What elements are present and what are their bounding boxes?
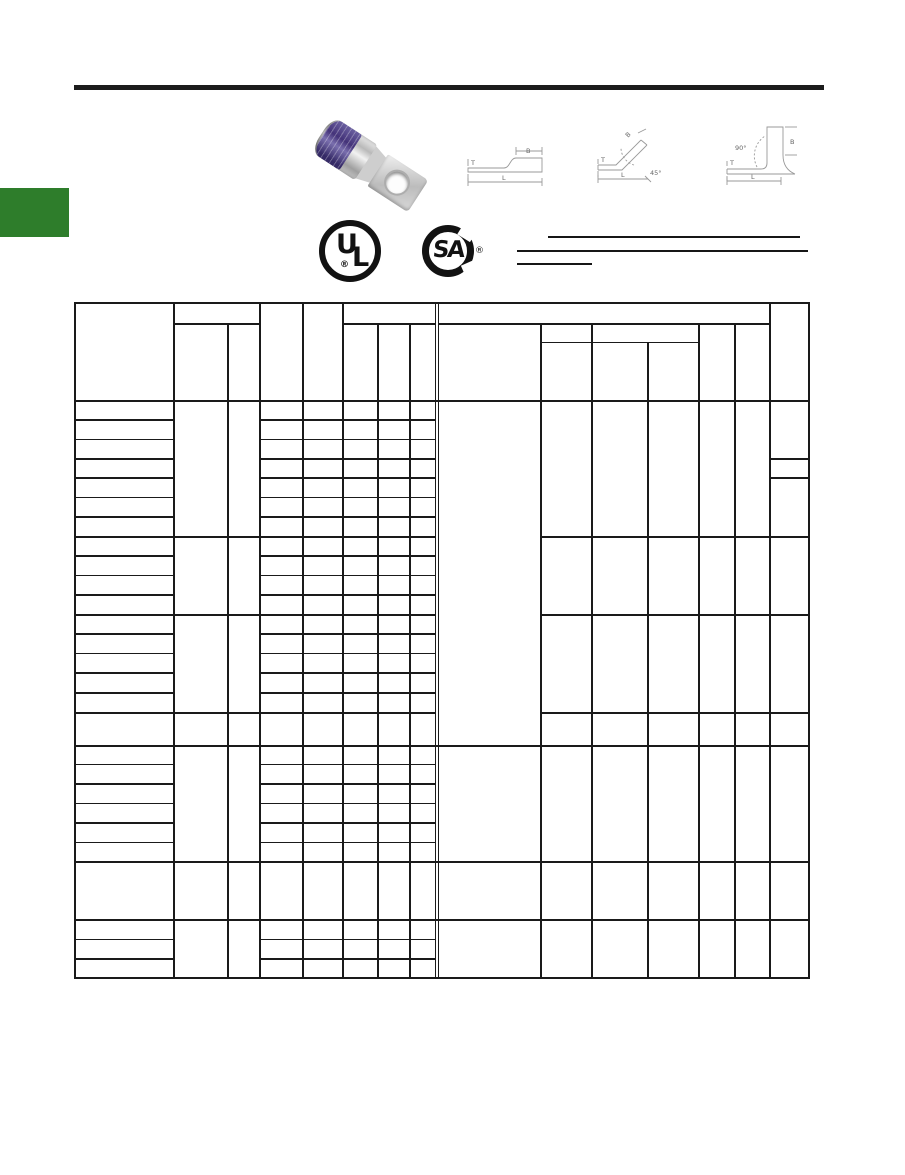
table-grid-line: [74, 302, 810, 304]
table-grid-line: [540, 536, 810, 538]
table-grid-line: [74, 977, 810, 979]
table-grid-line: [74, 555, 173, 557]
table-grid-line: [74, 764, 173, 766]
table-grid-line: [435, 302, 437, 977]
table-grid-line: [342, 323, 435, 325]
table-grid-line: [259, 458, 435, 460]
table-grid-line: [74, 939, 173, 941]
table-grid-line: [259, 497, 435, 499]
table-grid-line: [302, 302, 304, 977]
table-grid-line: [259, 555, 435, 557]
table-grid-line: [540, 323, 542, 977]
table-grid-line: [259, 842, 435, 844]
table-grid-line: [74, 575, 173, 577]
table-grid-line: [259, 594, 435, 596]
table-grid-line: [74, 919, 810, 921]
table-grid-line: [74, 958, 173, 960]
table-grid-line: [540, 342, 698, 344]
table-grid-line: [769, 302, 771, 977]
table-grid-line: [377, 323, 379, 977]
table-grid-line: [74, 302, 76, 979]
table-grid-line: [438, 323, 770, 325]
table-grid-line: [74, 614, 435, 616]
table-grid-line: [259, 958, 435, 960]
catalog-table: [74, 302, 810, 979]
table-grid-line: [259, 419, 435, 421]
table-grid-line: [259, 653, 435, 655]
table-grid-line: [74, 419, 173, 421]
table-grid-line: [74, 861, 810, 863]
table-grid-line: [259, 672, 435, 674]
table-grid-line: [74, 400, 810, 402]
green-side-tab: [0, 188, 69, 237]
dim-label-t: T: [600, 156, 605, 164]
table-grid-line: [74, 842, 173, 844]
table-grid-line: [74, 458, 173, 460]
table-grid-line: [438, 302, 440, 977]
table-grid-line: [74, 633, 173, 635]
ul-logo: U L ®: [319, 220, 382, 283]
table-grid-line: [769, 477, 810, 479]
table-grid-line: [259, 575, 435, 577]
table-grid-line: [74, 497, 173, 499]
table-grid-line: [647, 342, 649, 978]
table-grid-line: [74, 439, 173, 441]
table-grid-line: [74, 745, 810, 747]
ul-registered-mark: ®: [340, 260, 349, 270]
lug-assembly: [310, 116, 429, 214]
table-grid-line: [409, 323, 411, 977]
dim-label-b: B: [526, 147, 530, 155]
csa-letters-sa: SA: [426, 237, 471, 263]
dim-label-t: T: [470, 159, 475, 167]
table-grid-line: [259, 939, 435, 941]
dim-label-b: B: [790, 138, 794, 146]
table-grid-line: [74, 672, 173, 674]
dim-label-l: L: [621, 171, 625, 179]
ul-letter-l: L: [352, 242, 369, 273]
diagram-straight-lug: B T L: [464, 144, 552, 190]
table-grid-line: [259, 302, 261, 977]
dim-label-l: L: [502, 174, 506, 182]
table-grid-line: [769, 458, 810, 460]
table-grid-line: [808, 302, 810, 979]
table-grid-line: [259, 633, 435, 635]
dim-label-l: L: [751, 173, 755, 181]
table-grid-line: [259, 477, 435, 479]
blank-reference-line-1: [548, 236, 800, 238]
table-grid-line: [74, 516, 173, 518]
table-grid-line: [74, 692, 173, 694]
diagram-90-degree-lug: 90° B T L: [721, 119, 801, 187]
table-grid-line: [259, 822, 435, 824]
table-grid-line: [259, 783, 435, 785]
table-grid-line: [173, 302, 175, 977]
dim-label-t: T: [729, 159, 734, 167]
blank-reference-line-2: [517, 250, 808, 252]
blank-reference-line-3: [517, 263, 592, 265]
top-divider-rule: [74, 85, 824, 90]
csa-registered-mark: ®: [475, 246, 484, 256]
table-grid-line: [74, 536, 435, 538]
table-grid-line: [342, 302, 344, 977]
table-grid-line: [540, 614, 810, 616]
table-grid-line: [540, 712, 810, 714]
angle-label: 90°: [735, 144, 747, 152]
table-grid-line: [259, 516, 435, 518]
table-grid-line: [227, 323, 229, 977]
table-grid-line: [173, 323, 259, 325]
table-grid-line: [698, 323, 700, 977]
product-photo-lug: [327, 108, 455, 214]
table-grid-line: [591, 323, 593, 977]
table-grid-line: [74, 803, 173, 805]
table-grid-line: [734, 323, 736, 977]
table-grid-line: [259, 692, 435, 694]
table-grid-line: [259, 803, 435, 805]
angle-label: 45°: [650, 169, 662, 177]
dim-label-b: B: [624, 130, 633, 139]
table-grid-line: [74, 477, 173, 479]
table-grid-line: [74, 653, 173, 655]
csa-logo: SA ®: [422, 225, 474, 277]
table-grid-line: [74, 783, 173, 785]
table-grid-line: [74, 594, 173, 596]
table-grid-line: [259, 764, 435, 766]
table-grid-line: [74, 712, 435, 714]
table-grid-line: [74, 822, 173, 824]
diagram-45-degree-lug: B T L 45°: [594, 121, 676, 189]
table-grid-line: [259, 439, 435, 441]
